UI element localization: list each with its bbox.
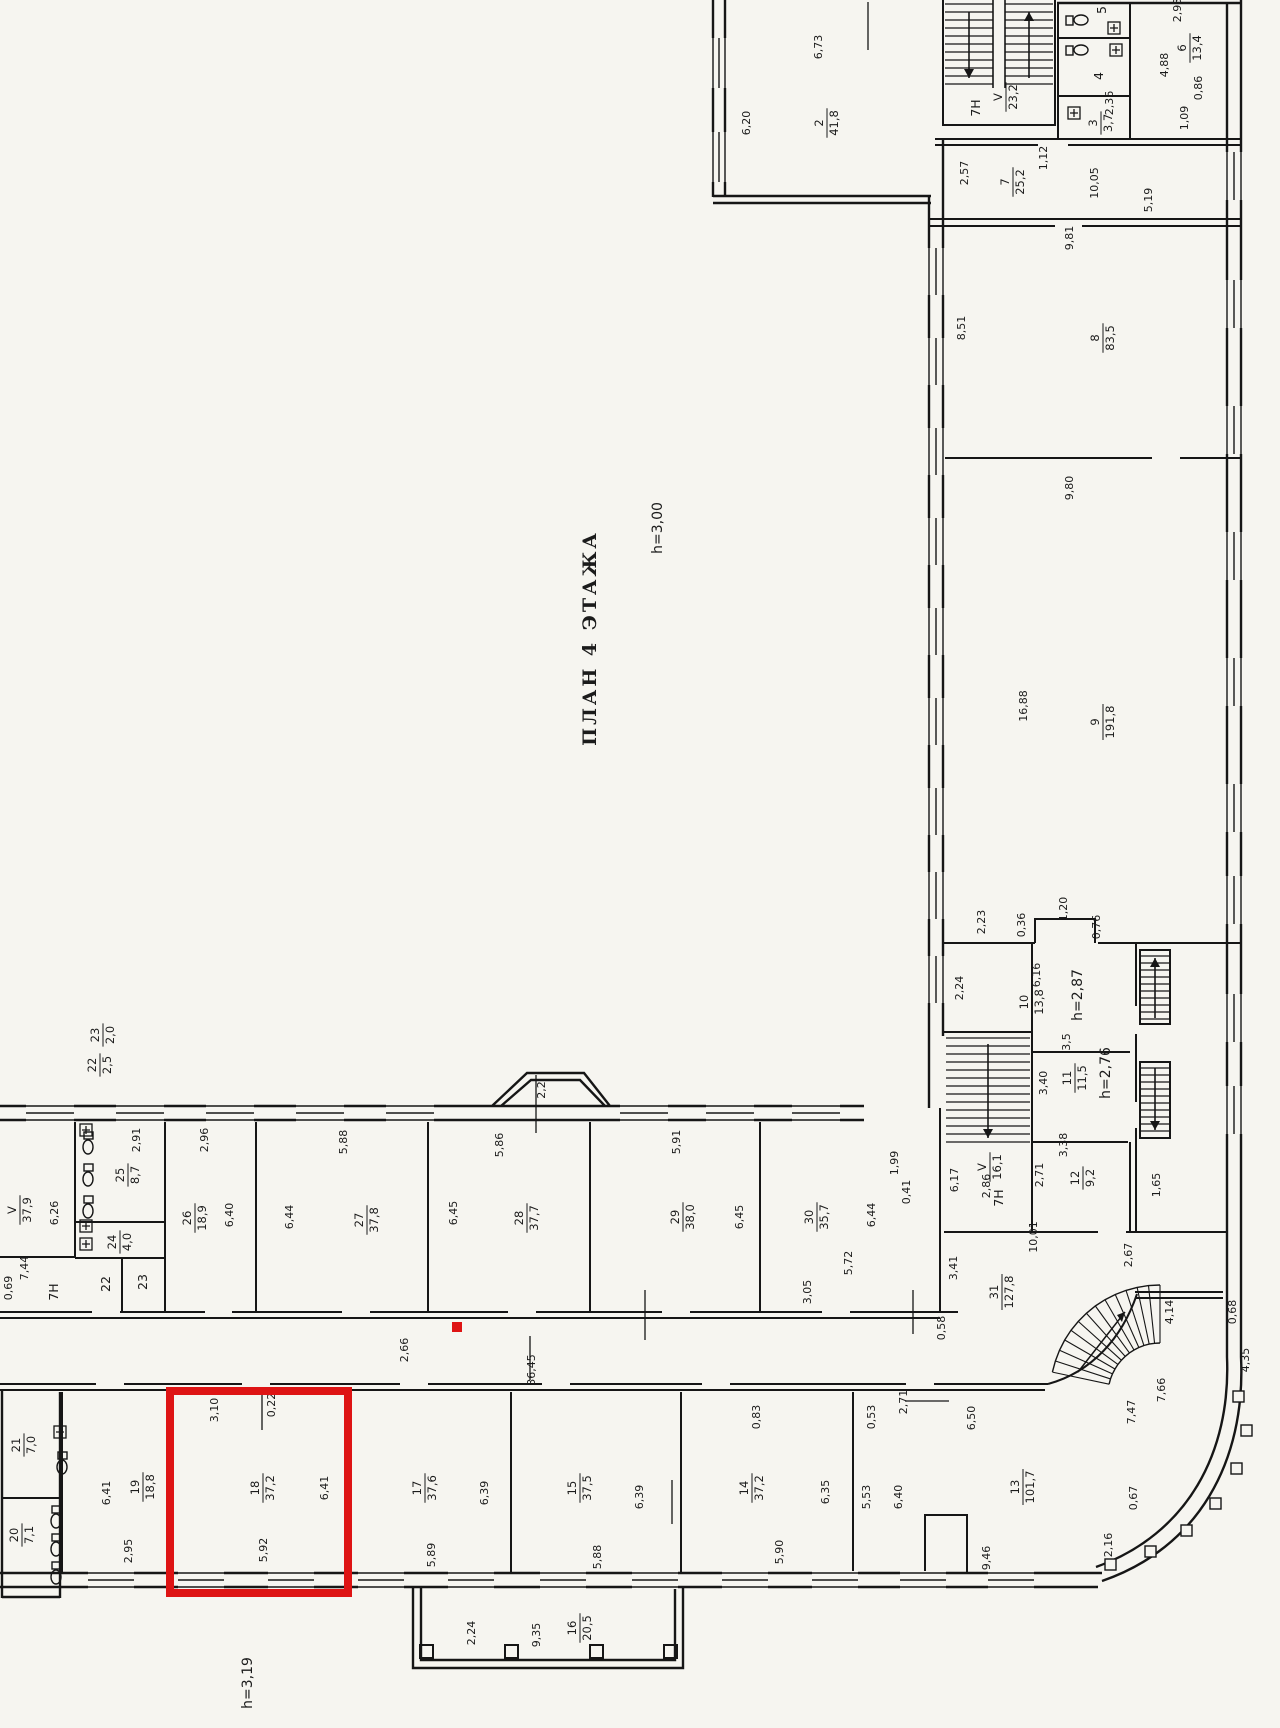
dim-label: 2,23 — [975, 910, 988, 935]
svg-text:0,68: 0,68 — [1226, 1300, 1239, 1325]
height-note: h=2,76 — [1098, 1047, 1114, 1099]
svg-text:7H: 7H — [46, 1283, 61, 1300]
svg-text:3,41: 3,41 — [947, 1256, 960, 1281]
corridor-tag: 7H — [968, 99, 983, 116]
dim-label: 6,20 — [740, 111, 753, 136]
dim-label: 2,67 — [1122, 1243, 1135, 1268]
svg-text:191,8: 191,8 — [1103, 706, 1117, 739]
dim-label: 9,81 — [1063, 226, 1076, 251]
svg-text:7H: 7H — [968, 99, 983, 116]
svg-text:4,35: 4,35 — [1239, 1348, 1252, 1373]
svg-text:22: 22 — [98, 1276, 113, 1292]
svg-text:2,66: 2,66 — [398, 1338, 411, 1363]
svg-text:27: 27 — [352, 1213, 366, 1228]
dim-label: 6,50 — [965, 1406, 978, 1431]
svg-text:ПЛАН 4 ЭТАЖА: ПЛАН 4 ЭТАЖА — [579, 530, 601, 746]
svg-text:0,83: 0,83 — [750, 1405, 763, 1430]
height-note: h=3,00 — [650, 502, 666, 554]
svg-text:13,4: 13,4 — [1190, 35, 1204, 61]
dim-label: 2,66 — [398, 1338, 411, 1363]
svg-text:20,5: 20,5 — [580, 1615, 594, 1641]
svg-text:h=3,19: h=3,19 — [240, 1657, 256, 1709]
dim-label: 0,53 — [865, 1405, 878, 1430]
svg-text:2,67: 2,67 — [1122, 1243, 1135, 1268]
dim-label: 6,44 — [865, 1203, 878, 1228]
svg-text:0,58: 0,58 — [935, 1316, 948, 1341]
svg-text:4,14: 4,14 — [1163, 1300, 1176, 1325]
svg-text:11,5: 11,5 — [1075, 1065, 1089, 1091]
svg-text:3,05: 3,05 — [801, 1280, 814, 1305]
svg-text:5,91: 5,91 — [670, 1130, 683, 1155]
dim-label: 1,20 — [1057, 897, 1070, 922]
svg-text:28: 28 — [512, 1211, 526, 1226]
svg-text:6,44: 6,44 — [283, 1205, 296, 1230]
svg-text:18,9: 18,9 — [195, 1205, 209, 1231]
svg-text:36,45: 36,45 — [525, 1354, 538, 1386]
svg-text:20: 20 — [7, 1528, 21, 1543]
dim-label: 2,24 — [953, 976, 966, 1001]
dim-label: 2,36 — [1103, 91, 1116, 116]
svg-text:101,7: 101,7 — [1023, 1471, 1037, 1504]
svg-text:2,23: 2,23 — [975, 910, 988, 935]
svg-text:8,7: 8,7 — [128, 1166, 142, 1184]
svg-text:0,76: 0,76 — [1090, 915, 1103, 940]
svg-text:7,44: 7,44 — [18, 1256, 31, 1281]
svg-text:2,57: 2,57 — [958, 161, 971, 186]
svg-text:30: 30 — [802, 1210, 816, 1225]
svg-text:13: 13 — [1008, 1480, 1022, 1495]
svg-text:5,72: 5,72 — [842, 1251, 855, 1276]
svg-text:3,40: 3,40 — [1037, 1071, 1050, 1096]
svg-text:1,20: 1,20 — [1057, 897, 1070, 922]
svg-text:3,5: 3,5 — [1060, 1033, 1073, 1051]
svg-text:41,8: 41,8 — [827, 110, 841, 136]
dim-label: 4,88 — [1158, 53, 1171, 78]
dim-label: 6,45 — [447, 1201, 460, 1226]
corridor-tag: 7H — [46, 1283, 61, 1300]
svg-text:6,50: 6,50 — [965, 1406, 978, 1431]
dim-label: 1,12 — [1037, 146, 1050, 171]
svg-text:V: V — [975, 1163, 989, 1171]
svg-text:6,41: 6,41 — [318, 1476, 331, 1501]
dim-label: 5,90 — [773, 1540, 786, 1565]
svg-text:6,40: 6,40 — [223, 1203, 236, 1228]
svg-text:2,24: 2,24 — [465, 1621, 478, 1646]
dim-label: 3,05 — [801, 1280, 814, 1305]
svg-text:2,71: 2,71 — [1033, 1163, 1046, 1188]
dim-label: 5,53 — [860, 1485, 873, 1510]
svg-text:83,5: 83,5 — [1103, 325, 1117, 351]
svg-text:2,86: 2,86 — [980, 1174, 993, 1199]
svg-text:2,36: 2,36 — [1103, 91, 1116, 116]
svg-text:1,12: 1,12 — [1037, 146, 1050, 171]
dim-label: 5,19 — [1142, 188, 1155, 213]
svg-text:3,10: 3,10 — [208, 1398, 221, 1423]
dim-label: 4,35 — [1239, 1348, 1252, 1373]
dim-label: 9,80 — [1063, 476, 1076, 501]
dim-label: 2,71 — [897, 1390, 910, 1415]
svg-text:0,69: 0,69 — [2, 1276, 15, 1301]
scanned-floor-plan-page: ПЛАН 4 ЭТАЖАh=3,00h=2,87h=2,76h=3,19241,… — [0, 0, 1280, 1728]
corridor-tag: 5 — [1094, 6, 1109, 14]
svg-text:5,89: 5,89 — [425, 1543, 438, 1568]
svg-text:1,65: 1,65 — [1150, 1173, 1163, 1198]
svg-text:16: 16 — [565, 1621, 579, 1636]
dim-label: 7,47 — [1125, 1400, 1138, 1425]
svg-text:1,09: 1,09 — [1178, 106, 1191, 131]
svg-text:6,45: 6,45 — [447, 1201, 460, 1226]
svg-text:h=3,00: h=3,00 — [650, 502, 666, 554]
dim-label: 5,92 — [257, 1538, 270, 1563]
svg-text:12: 12 — [1068, 1171, 1082, 1186]
svg-text:2,2: 2,2 — [535, 1081, 548, 1099]
dim-label: 3,41 — [947, 1256, 960, 1281]
svg-text:6,20: 6,20 — [740, 111, 753, 136]
svg-text:3,7: 3,7 — [1101, 114, 1115, 132]
svg-text:2,96: 2,96 — [198, 1128, 211, 1153]
dim-label: 6,40 — [892, 1485, 905, 1510]
svg-text:18,8: 18,8 — [143, 1474, 157, 1500]
height-note: h=2,87 — [1070, 969, 1086, 1021]
svg-text:2,71: 2,71 — [897, 1390, 910, 1415]
svg-text:6,17: 6,17 — [948, 1168, 961, 1193]
plan-title: ПЛАН 4 ЭТАЖА — [579, 530, 601, 746]
dim-label: 36,45 — [525, 1354, 538, 1386]
svg-text:5,19: 5,19 — [1142, 188, 1155, 213]
svg-text:6,39: 6,39 — [633, 1485, 646, 1510]
svg-text:7,47: 7,47 — [1125, 1400, 1138, 1425]
dim-label: 1,65 — [1150, 1173, 1163, 1198]
svg-text:17: 17 — [410, 1481, 424, 1496]
svg-text:23: 23 — [135, 1274, 150, 1290]
dim-label: 6,39 — [478, 1481, 491, 1506]
dim-label: 2,57 — [958, 161, 971, 186]
svg-text:35,7: 35,7 — [817, 1204, 831, 1230]
height-note: h=3,19 — [240, 1657, 256, 1709]
svg-text:4,0: 4,0 — [120, 1233, 134, 1251]
svg-text:0,36: 0,36 — [1015, 913, 1028, 938]
svg-text:6,16: 6,16 — [1030, 963, 1043, 988]
svg-text:37,2: 37,2 — [263, 1475, 277, 1501]
svg-text:10,05: 10,05 — [1088, 167, 1101, 199]
dim-label: 6,17 — [948, 1168, 961, 1193]
svg-text:0,67: 0,67 — [1127, 1486, 1140, 1511]
dim-label: 6,35 — [819, 1480, 832, 1505]
svg-text:6,73: 6,73 — [812, 35, 825, 60]
dim-label: 6,40 — [223, 1203, 236, 1228]
svg-text:9,46: 9,46 — [980, 1546, 993, 1571]
svg-text:2,5: 2,5 — [100, 1056, 114, 1074]
dim-label: 7,66 — [1155, 1378, 1168, 1403]
dim-label: 0,76 — [1090, 915, 1103, 940]
svg-text:9,35: 9,35 — [530, 1623, 543, 1648]
dim-label: 16,88 — [1017, 690, 1030, 722]
svg-text:25: 25 — [113, 1168, 127, 1183]
svg-text:16,88: 16,88 — [1017, 690, 1030, 722]
svg-text:6,40: 6,40 — [892, 1485, 905, 1510]
dim-label: 3,40 — [1037, 1071, 1050, 1096]
svg-text:2: 2 — [812, 119, 826, 126]
dim-label: 5,86 — [493, 1133, 506, 1158]
dim-label: 2,95 — [122, 1539, 135, 1564]
svg-text:21: 21 — [9, 1438, 23, 1453]
svg-text:6,35: 6,35 — [819, 1480, 832, 1505]
dim-label: 2,24 — [465, 1621, 478, 1646]
svg-text:127,8: 127,8 — [1002, 1276, 1016, 1309]
dim-label: 9,46 — [980, 1546, 993, 1571]
svg-text:h=2,76: h=2,76 — [1098, 1047, 1114, 1099]
svg-text:5: 5 — [1094, 6, 1109, 14]
svg-text:13,8: 13,8 — [1032, 989, 1046, 1015]
dim-label: 6,26 — [48, 1201, 61, 1226]
svg-text:22: 22 — [85, 1058, 99, 1073]
svg-text:15: 15 — [565, 1481, 579, 1496]
svg-text:11: 11 — [1060, 1071, 1074, 1086]
dim-label: 0,83 — [750, 1405, 763, 1430]
dim-label: 0,22 — [265, 1393, 278, 1418]
svg-text:2,95: 2,95 — [122, 1539, 135, 1564]
svg-text:23,2: 23,2 — [1006, 84, 1020, 110]
svg-text:5,88: 5,88 — [591, 1545, 604, 1570]
svg-text:37,7: 37,7 — [527, 1205, 541, 1231]
dim-label: 0,69 — [2, 1276, 15, 1301]
dim-label: 6,44 — [283, 1205, 296, 1230]
svg-text:29: 29 — [668, 1210, 682, 1225]
corridor-tag: 4 — [1091, 72, 1106, 80]
dim-label: 0,36 — [1015, 913, 1028, 938]
svg-text:37,6: 37,6 — [425, 1475, 439, 1501]
svg-text:4: 4 — [1091, 72, 1106, 80]
svg-text:10: 10 — [1017, 995, 1031, 1010]
svg-text:9,81: 9,81 — [1063, 226, 1076, 251]
dim-label: 2,91 — [130, 1128, 143, 1153]
svg-text:37,5: 37,5 — [580, 1475, 594, 1501]
dim-label: 2,86 — [980, 1174, 993, 1199]
svg-text:9,80: 9,80 — [1063, 476, 1076, 501]
corridor-tag: 7H — [991, 1189, 1006, 1206]
dim-label: 6,39 — [633, 1485, 646, 1510]
dim-label: 4,14 — [1163, 1300, 1176, 1325]
svg-text:37,8: 37,8 — [367, 1207, 381, 1233]
svg-text:7,0: 7,0 — [24, 1436, 38, 1454]
svg-text:7: 7 — [998, 178, 1012, 185]
dim-label: 1,99 — [888, 1151, 901, 1176]
dim-label: 0,68 — [1226, 1300, 1239, 1325]
svg-text:37,9: 37,9 — [20, 1197, 34, 1223]
dim-label: 5,88 — [591, 1545, 604, 1570]
dim-label: 2,2 — [535, 1081, 548, 1099]
svg-text:38,0: 38,0 — [683, 1204, 697, 1230]
dim-label: 3,5 — [1060, 1033, 1073, 1051]
floor-plan-canvas: ПЛАН 4 ЭТАЖАh=3,00h=2,87h=2,76h=3,19241,… — [0, 0, 1280, 1728]
dim-label: 6,73 — [812, 35, 825, 60]
svg-text:V: V — [5, 1206, 19, 1214]
dim-label: 8,51 — [955, 316, 968, 341]
svg-text:2,24: 2,24 — [953, 976, 966, 1001]
dim-label: 10,01 — [1027, 1221, 1040, 1253]
svg-text:h=2,87: h=2,87 — [1070, 969, 1086, 1021]
paper-background — [0, 0, 1280, 1728]
svg-text:31: 31 — [987, 1285, 1001, 1300]
dim-label: 0,86 — [1192, 76, 1205, 101]
svg-text:2,0: 2,0 — [103, 1026, 117, 1044]
svg-text:2,93: 2,93 — [1171, 0, 1184, 22]
svg-text:5,86: 5,86 — [493, 1133, 506, 1158]
dim-label: 9,35 — [530, 1623, 543, 1648]
dim-label: 3,38 — [1057, 1133, 1070, 1158]
dim-label: 2,96 — [198, 1128, 211, 1153]
svg-text:7,1: 7,1 — [22, 1526, 36, 1544]
svg-text:0,41: 0,41 — [900, 1180, 913, 1205]
svg-text:7H: 7H — [991, 1189, 1006, 1206]
svg-text:6,41: 6,41 — [100, 1481, 113, 1506]
svg-text:6,26: 6,26 — [48, 1201, 61, 1226]
svg-text:6,44: 6,44 — [865, 1203, 878, 1228]
svg-text:5,90: 5,90 — [773, 1540, 786, 1565]
dim-label: 2,16 — [1102, 1533, 1115, 1558]
dim-label: 5,89 — [425, 1543, 438, 1568]
dim-label: 0,58 — [935, 1316, 948, 1341]
dim-label: 6,45 — [733, 1205, 746, 1230]
svg-text:1,99: 1,99 — [888, 1151, 901, 1176]
svg-text:3,38: 3,38 — [1057, 1133, 1070, 1158]
svg-text:0,86: 0,86 — [1192, 76, 1205, 101]
svg-text:6,45: 6,45 — [733, 1205, 746, 1230]
svg-text:14: 14 — [737, 1481, 751, 1496]
svg-text:2,16: 2,16 — [1102, 1533, 1115, 1558]
dim-label: 5,91 — [670, 1130, 683, 1155]
dim-label: 5,88 — [337, 1130, 350, 1155]
dim-label: 6,41 — [318, 1476, 331, 1501]
dim-label: 2,71 — [1033, 1163, 1046, 1188]
dim-label: 1,09 — [1178, 106, 1191, 131]
svg-text:9: 9 — [1088, 718, 1102, 725]
svg-text:23: 23 — [88, 1028, 102, 1043]
svg-text:8,51: 8,51 — [955, 316, 968, 341]
dim-label: 0,67 — [1127, 1486, 1140, 1511]
dim-label: 0,41 — [900, 1180, 913, 1205]
dim-label: 10,05 — [1088, 167, 1101, 199]
svg-text:5,53: 5,53 — [860, 1485, 873, 1510]
svg-text:26: 26 — [180, 1211, 194, 1226]
svg-text:6,39: 6,39 — [478, 1481, 491, 1506]
svg-text:5,88: 5,88 — [337, 1130, 350, 1155]
svg-text:V: V — [991, 93, 1005, 101]
corridor-tag: 22 — [98, 1276, 113, 1292]
dim-label: 2,93 — [1171, 0, 1184, 22]
svg-text:24: 24 — [105, 1235, 119, 1250]
svg-text:5,92: 5,92 — [257, 1538, 270, 1563]
svg-text:4,88: 4,88 — [1158, 53, 1171, 78]
svg-text:0,22: 0,22 — [265, 1393, 278, 1418]
highlight-marker-dot — [452, 1322, 462, 1332]
svg-text:18: 18 — [248, 1481, 262, 1496]
dim-label: 7,44 — [18, 1256, 31, 1281]
svg-text:8: 8 — [1088, 334, 1102, 341]
svg-text:6: 6 — [1175, 44, 1189, 51]
svg-text:9,2: 9,2 — [1083, 1169, 1097, 1187]
svg-text:10,01: 10,01 — [1027, 1221, 1040, 1253]
corridor-tag: 23 — [135, 1274, 150, 1290]
svg-text:0,53: 0,53 — [865, 1405, 878, 1430]
svg-text:37,2: 37,2 — [752, 1475, 766, 1501]
svg-text:3: 3 — [1086, 119, 1100, 126]
dim-label: 6,41 — [100, 1481, 113, 1506]
dim-label: 6,16 — [1030, 963, 1043, 988]
svg-text:25,2: 25,2 — [1013, 169, 1027, 195]
svg-text:19: 19 — [128, 1480, 142, 1495]
svg-text:7,66: 7,66 — [1155, 1378, 1168, 1403]
dim-label: 3,10 — [208, 1398, 221, 1423]
svg-text:2,91: 2,91 — [130, 1128, 143, 1153]
dim-label: 5,72 — [842, 1251, 855, 1276]
